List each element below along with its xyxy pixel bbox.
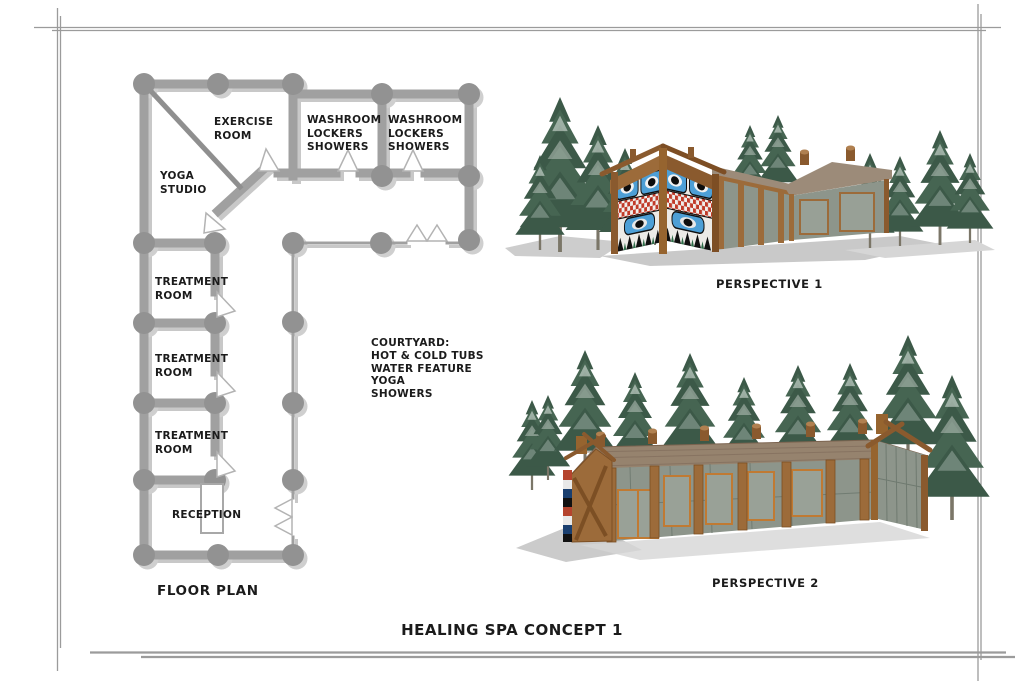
washroom-1-label: WASHROOM LOCKERS SHOWERS [307,114,381,155]
yoga-studio-label: YOGA STUDIO [160,170,207,197]
drawing-sheet: EXERCISE ROOM WASHROOM LOCKERS SHOWERS W… [0,0,1024,687]
perspective-1-rendering [505,97,995,266]
perspective-1-caption: PERSPECTIVE 1 [716,277,823,291]
treatment-room-2-label: TREATMENT ROOM [155,353,228,380]
courtyard-note: COURTYARD: HOT & COLD TUBS WATER FEATURE… [371,337,484,401]
perspective-2-rendering [509,335,990,562]
treatment-room-1-label: TREATMENT ROOM [155,276,228,303]
page-title: HEALING SPA CONCEPT 1 [401,621,623,639]
reception-label: RECEPTION [172,509,241,523]
sheet-border [34,4,1015,681]
glass-wing [712,146,892,251]
treatment-room-3-label: TREATMENT ROOM [155,430,228,457]
perspective-2-caption: PERSPECTIVE 2 [712,576,819,590]
washroom-2-label: WASHROOM LOCKERS SHOWERS [388,114,462,155]
exercise-room-label: EXERCISE ROOM [214,116,273,143]
architectural-drawing [0,0,1024,687]
floor-plan-caption: FLOOR PLAN [157,583,259,599]
gable-mural-stripes [563,470,572,542]
